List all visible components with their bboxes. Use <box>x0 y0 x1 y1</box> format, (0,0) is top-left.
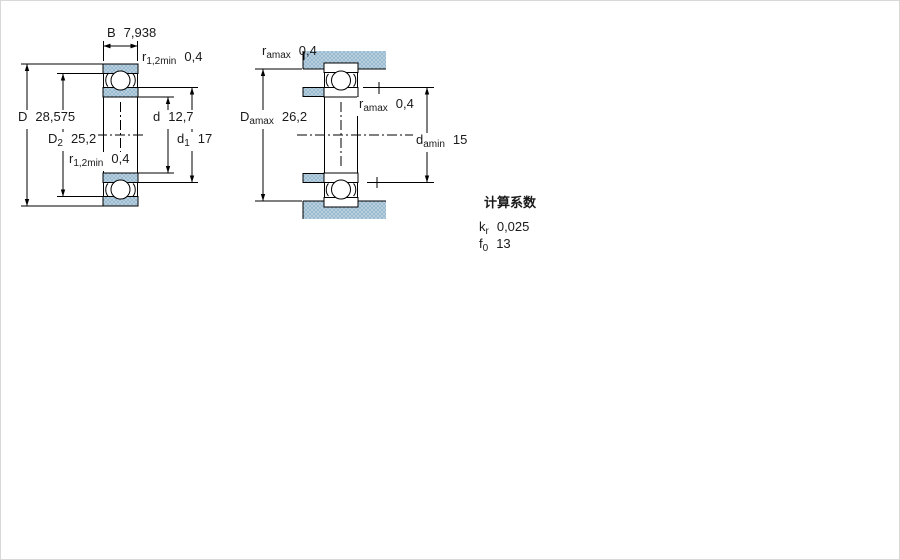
factor-value: 0,025 <box>497 219 530 234</box>
dim-symbol: d <box>153 109 160 124</box>
arrow-down <box>25 199 29 206</box>
bearing-drawing-canvas: B7,938 r1,2min0,4 D28,575 d12,7 D225,2 d… <box>0 0 900 560</box>
factor-value: 13 <box>496 236 510 251</box>
dim-value: 12,7 <box>168 109 193 124</box>
Damax-extension-lines <box>255 69 302 201</box>
left-view-bearing-section <box>97 64 144 206</box>
right-bottom-section <box>324 173 358 207</box>
shield-left <box>106 184 108 197</box>
dim-ramax-mid-label: ramax0,4 <box>357 97 416 116</box>
ball <box>332 71 351 90</box>
dim-subscript: 1,2min <box>73 158 103 169</box>
dim-B-label: B7,938 <box>107 26 156 45</box>
dim-symbol: D <box>18 109 27 124</box>
dim-subscript: 1,2min <box>146 56 176 67</box>
ball <box>111 180 130 199</box>
dim-symbol: B <box>107 25 116 40</box>
arrow-down <box>61 190 65 197</box>
dim-value: 0,4 <box>396 96 414 111</box>
shield-right <box>354 74 356 87</box>
arrow-down <box>190 176 194 183</box>
dim-subscript: amin <box>423 139 445 150</box>
shield-right <box>133 74 135 87</box>
calculation-factors-title: 计算系数 <box>484 196 536 210</box>
dim-r12min-bottom-label: r1,2min0,4 <box>67 152 131 171</box>
dim-subscript: 2 <box>57 138 63 149</box>
dim-value: 0,4 <box>184 49 202 64</box>
dim-value: 28,575 <box>35 109 75 124</box>
dim-subscript: amax <box>249 116 273 127</box>
dim-symbol: D <box>240 109 249 124</box>
arrow-down <box>261 194 265 201</box>
dim-subscript: amax <box>363 103 387 114</box>
arrow-down <box>425 176 429 183</box>
dim-damin-label: damin15 <box>414 133 469 152</box>
shield-left <box>326 184 328 197</box>
shaft-shoulder-top <box>303 88 324 97</box>
dim-value: 26,2 <box>282 109 307 124</box>
arrow-down <box>166 166 170 173</box>
factor-subscript: 0 <box>483 243 489 254</box>
dim-value: 7,938 <box>124 25 157 40</box>
dim-value: 25,2 <box>71 131 96 146</box>
arrow-up <box>61 74 65 81</box>
right-view-mounting <box>297 51 413 219</box>
arrow-up <box>261 69 265 76</box>
arrow-up <box>190 88 194 95</box>
dim-D2-label: D225,2 <box>46 132 98 151</box>
arrow-up <box>25 64 29 71</box>
shield-left <box>106 74 108 87</box>
ball <box>111 71 130 90</box>
shaft-shoulder-bottom <box>303 174 324 183</box>
dim-D-label: D28,575 <box>16 110 77 129</box>
arrow-up <box>425 88 429 95</box>
left-bottom-section <box>103 173 138 206</box>
left-top-section <box>103 64 138 97</box>
dim-value: 17 <box>198 131 212 146</box>
dim-d1-label: d117 <box>175 132 214 151</box>
dim-ramax-top-label: ramax0,4 <box>262 44 317 63</box>
arrow-up <box>166 97 170 104</box>
dim-value: 0,4 <box>111 151 129 166</box>
factor-subscript: r <box>486 226 489 237</box>
dim-subscript: amax <box>266 50 290 61</box>
factor-f0: f013 <box>479 237 511 256</box>
dim-r12min-top-label: r1,2min0,4 <box>142 50 202 69</box>
dim-symbol: D <box>48 131 57 146</box>
dim-value: 15 <box>453 132 467 147</box>
shield-right <box>133 184 135 197</box>
shield-right <box>354 184 356 197</box>
right-top-section <box>324 63 358 97</box>
shield-left <box>326 74 328 87</box>
dim-value: 0,4 <box>299 43 317 58</box>
bearing-linework <box>1 1 900 560</box>
dim-d-label: d12,7 <box>151 110 196 129</box>
ball <box>332 180 351 199</box>
dim-Damax-label: Damax26,2 <box>238 110 309 129</box>
dim-subscript: 1 <box>184 138 190 149</box>
